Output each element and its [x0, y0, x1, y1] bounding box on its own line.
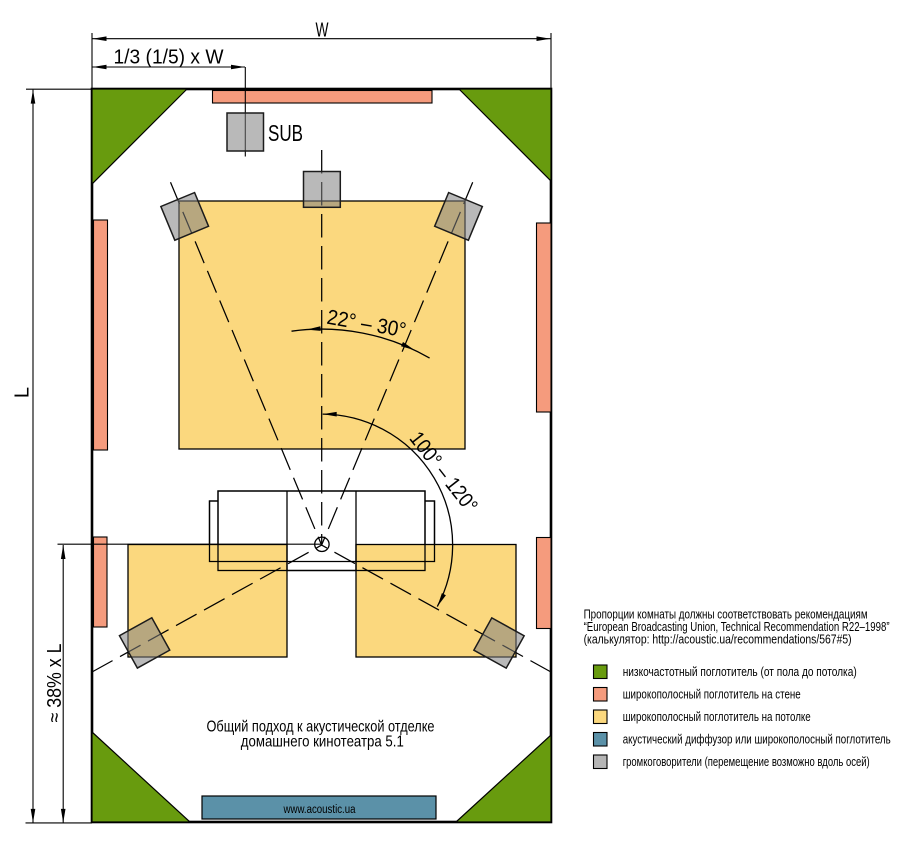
svg-text:домашнего кинотеатра 5.1: домашнего кинотеатра 5.1: [241, 733, 404, 750]
svg-text:низкочастотный поглотитель (от: низкочастотный поглотитель (от пола до п…: [623, 665, 857, 679]
svg-text:SUB: SUB: [268, 120, 303, 146]
svg-text:www.acoustic.ua: www.acoustic.ua: [283, 804, 356, 816]
svg-text:громкоговорители (перемещение: громкоговорители (перемещение возможно в…: [623, 755, 870, 769]
svg-text:≈ 38% x L: ≈ 38% x L: [44, 644, 66, 723]
svg-text:широкополосный поглотитель на: широкополосный поглотитель на стене: [623, 688, 801, 702]
svg-text:(калькулятор: http://acoustic.: (калькулятор: http://acoustic.ua/recomme…: [584, 632, 852, 646]
svg-text:W: W: [316, 20, 329, 42]
svg-text:акустический диффузор или широ: акустический диффузор или широкополосный…: [623, 733, 891, 747]
svg-text:широкополосный поглотитель на: широкополосный поглотитель на потолке: [623, 710, 811, 724]
svg-text:L: L: [12, 387, 34, 398]
svg-text:1/3 (1/5) x W: 1/3 (1/5) x W: [114, 46, 224, 68]
